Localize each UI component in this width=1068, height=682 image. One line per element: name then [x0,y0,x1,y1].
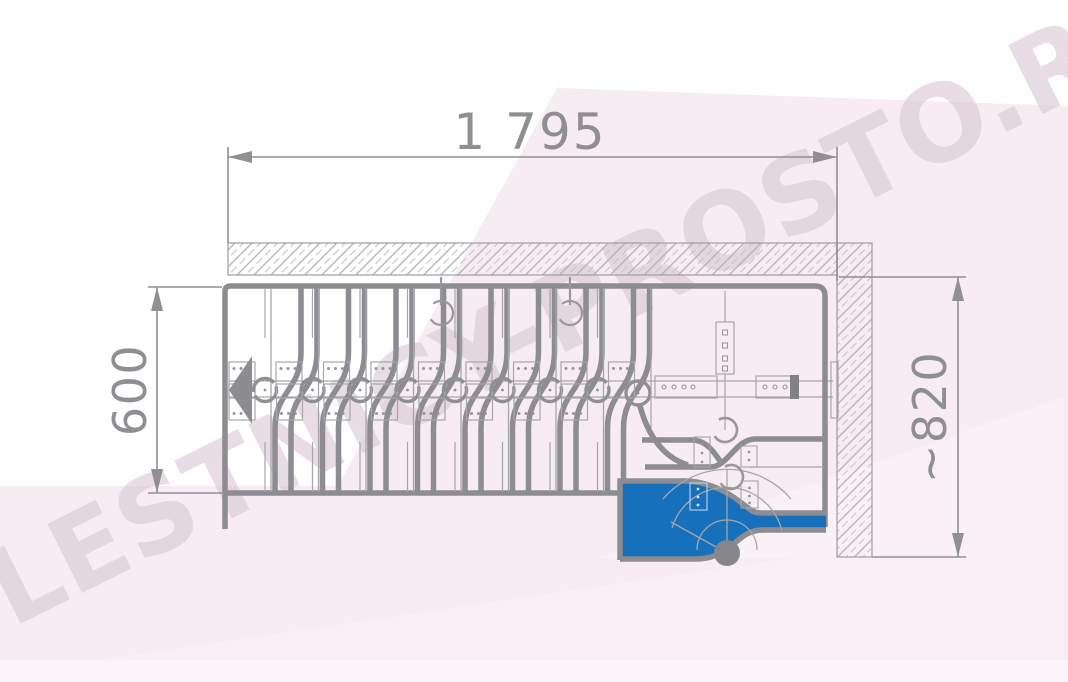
right-wall [837,243,872,557]
background-bottom-strip [0,660,1068,682]
beam-end-cap [790,375,799,399]
staircase-plan-drawing: LESTNICY-PROSTO.RU 1 795 600 ~820 [0,0,1068,682]
staircase-plan-screenshot: LESTNICY-PROSTO.RU 1 795 600 ~820 [0,0,1068,682]
top-wall [228,243,837,275]
dimension-depth-left-label: 600 [103,344,157,436]
spiral-pole [714,540,740,566]
hinge-center-dot [637,392,640,395]
dimension-width-label: 1 795 [453,103,606,161]
dimension-depth-right-label: ~820 [903,351,957,483]
